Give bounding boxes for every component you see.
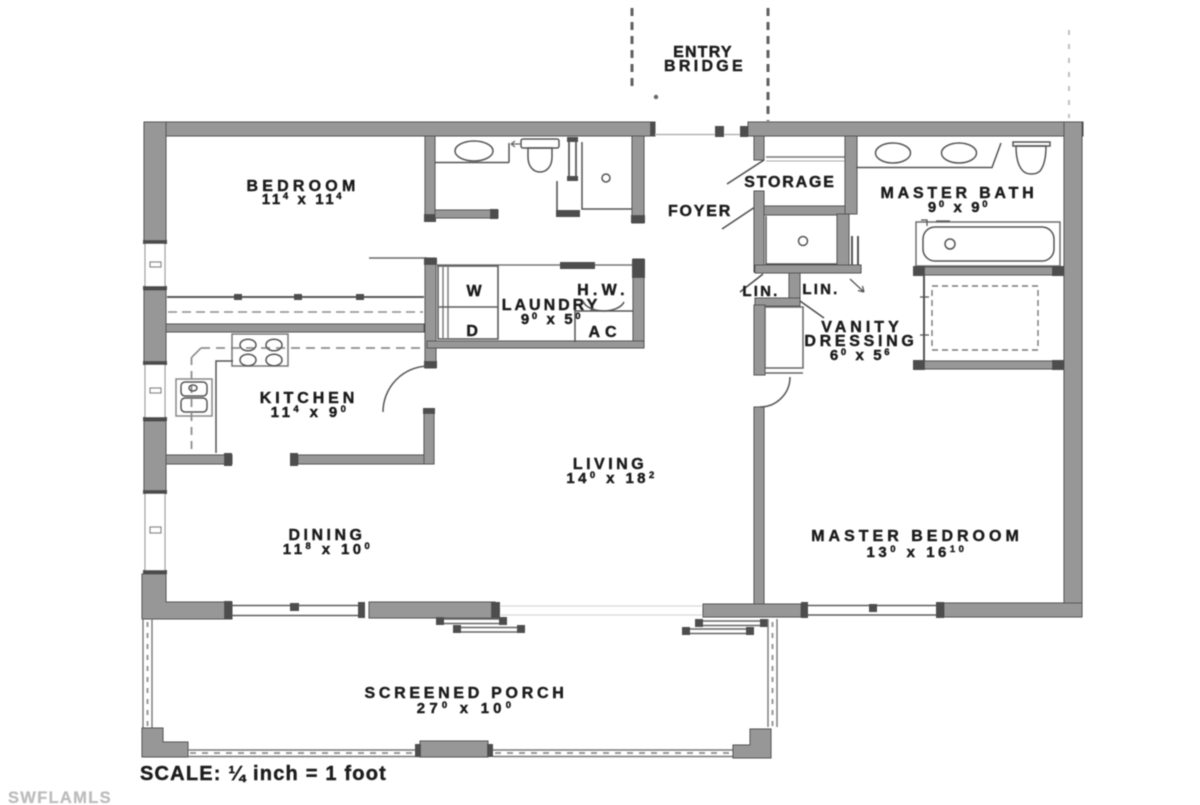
svg-text:FOYER: FOYER bbox=[668, 203, 732, 220]
svg-text:STORAGE: STORAGE bbox=[744, 174, 835, 191]
svg-text:118 x 100: 118 x 100 bbox=[283, 541, 373, 558]
svg-text:SCALE: ¼ inch = 1 foot: SCALE: ¼ inch = 1 foot bbox=[140, 763, 387, 785]
svg-text:H.W.: H.W. bbox=[577, 282, 629, 299]
svg-text:BRIDGE: BRIDGE bbox=[664, 58, 746, 75]
svg-text:114 x 114: 114 x 114 bbox=[262, 191, 344, 208]
svg-text:D: D bbox=[466, 323, 479, 340]
svg-text:W: W bbox=[467, 283, 484, 300]
svg-text:270 x 100: 270 x 100 bbox=[417, 700, 515, 717]
svg-text:LIN.: LIN. bbox=[802, 281, 839, 298]
svg-text:LIN.: LIN. bbox=[742, 283, 779, 300]
svg-text:AC: AC bbox=[588, 324, 621, 341]
svg-text:90 x 50: 90 x 50 bbox=[521, 311, 583, 328]
svg-text:140 x 182: 140 x 182 bbox=[566, 470, 657, 487]
svg-text:60 x 56: 60 x 56 bbox=[830, 347, 892, 364]
svg-text:SWFLAMLS: SWFLAMLS bbox=[8, 789, 112, 805]
svg-text:MASTER BEDROOM: MASTER BEDROOM bbox=[811, 528, 1023, 545]
svg-text:90 x 90: 90 x 90 bbox=[928, 199, 990, 216]
svg-text:114 x 90: 114 x 90 bbox=[271, 404, 350, 421]
